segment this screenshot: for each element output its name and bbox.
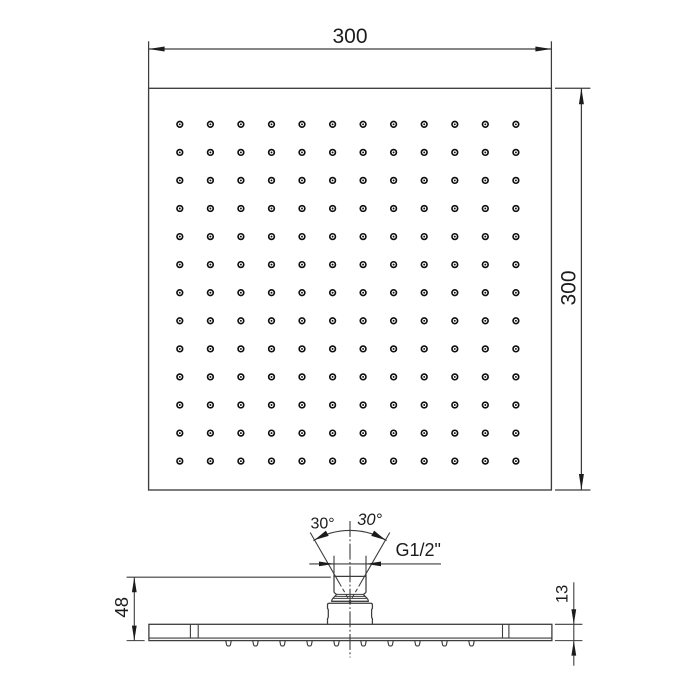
svg-text:48: 48: [111, 597, 132, 618]
svg-text:13: 13: [553, 585, 571, 603]
svg-text:30°: 30°: [357, 511, 382, 529]
svg-text:300: 300: [557, 270, 580, 305]
svg-text:300: 300: [332, 25, 367, 48]
svg-text:G1/2": G1/2": [396, 540, 441, 560]
svg-text:30°: 30°: [311, 516, 335, 533]
